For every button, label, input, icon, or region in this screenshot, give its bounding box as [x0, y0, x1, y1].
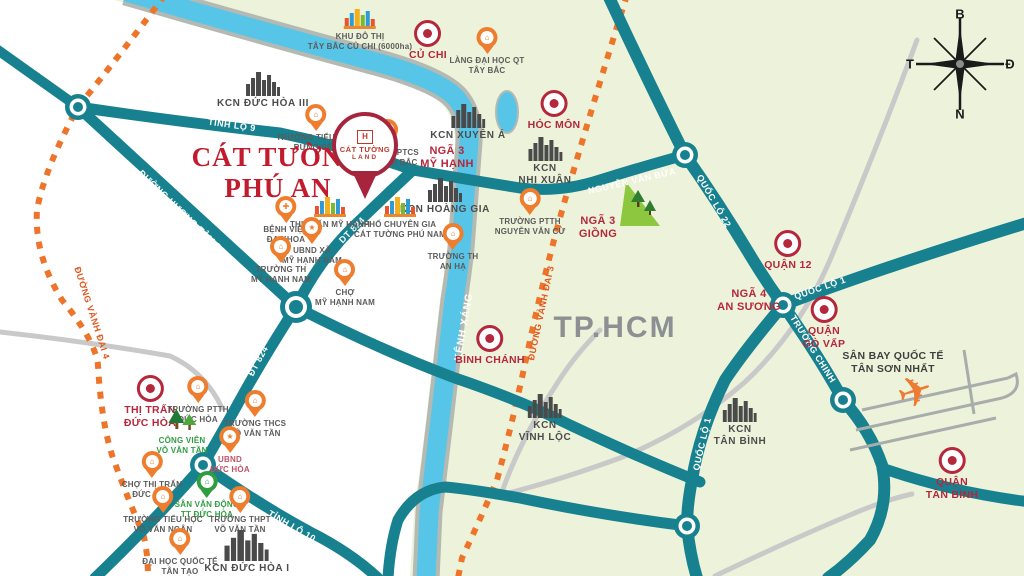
compass-south-label: N — [955, 107, 964, 122]
cat-tuong-logo-icon: H — [357, 130, 373, 144]
poi-pin-icon: ⌂ — [244, 390, 265, 411]
marker-label: QUẬN 12 — [764, 259, 812, 272]
poi-pin-icon: ⌂ — [519, 188, 540, 209]
marker-label: KHU ĐÔ THỊ TÂY BẮC CỦ CHI (6000ha) — [308, 32, 412, 51]
marker-kcn-nhi-xuan: KCN NHỊ XUÂN — [518, 137, 571, 187]
park-nga-3-giong — [620, 182, 660, 226]
marker-label: NGÃ 3 GIỒNG — [579, 215, 617, 241]
factory-icon — [528, 394, 562, 418]
factory-icon — [528, 137, 562, 161]
marker-san-bay-quoc-te-tan-son-nhat: SÂN BAY QUỐC TẾ TÂN SƠN NHẤT — [842, 348, 943, 375]
poi-pin-icon: ⌂ — [188, 376, 209, 397]
marker-label: SÂN BAY QUỐC TẾ TÂN SƠN NHẤT — [842, 350, 943, 375]
poi-pin-icon: ⌂ — [270, 236, 291, 257]
marker-quan-tan-binh: QUẬN TÂN BÌNH — [926, 447, 979, 501]
marker-cu-chi: CỦ CHI — [409, 20, 447, 62]
district-circle-icon — [939, 447, 966, 474]
project-pin: H CÁT TƯỜNG LAND — [332, 112, 398, 199]
compass-star-icon — [908, 10, 1012, 118]
district-circle-icon — [477, 325, 504, 352]
poi-pin-icon: ⌂ — [443, 223, 464, 244]
marker-label: LÀNG ĐẠI HỌC QT TÂY BẮC — [450, 56, 525, 75]
project-pin-badge: H CÁT TƯỜNG LAND — [332, 112, 398, 178]
factory-icon — [225, 530, 269, 561]
factory-icon — [451, 104, 485, 128]
compass-west-label: T — [906, 57, 914, 72]
marker-label: HÓC MÔN — [528, 119, 581, 132]
marker-label: TRƯỜNG TH MỸ HẠNH NAM — [251, 265, 311, 284]
marker-truong-th-my-hanh-nam: ⌂TRƯỜNG TH MỸ HẠNH NAM — [251, 236, 311, 284]
marker-tp-hcm: TP.HCM — [553, 308, 676, 346]
compass-east-label: Đ — [1005, 57, 1014, 72]
poi-pin-icon: ⌂ — [477, 27, 498, 48]
district-circle-icon — [540, 90, 567, 117]
district-circle-icon — [775, 230, 802, 257]
marker-quan-12: QUẬN 12 — [764, 230, 812, 272]
marker-ubnd-duc-hoa: ★UBND ĐỨC HÒA — [210, 426, 250, 474]
poi-pin-icon: ⌂ — [305, 104, 326, 125]
marker-cong-vien-vo-van-tan: CÔNG VIÊN VÕ VĂN TẦN — [156, 408, 207, 455]
marker-truong-th-an-ha: ⌂TRƯỜNG TH AN HẠ — [428, 223, 479, 271]
city-icon — [343, 8, 377, 30]
marker-binh-chanh: BÌNH CHÁNH — [455, 325, 525, 367]
marker-truong-thpt-vo-van-tan: ⌂TRƯỜNG THPT VÕ VĂN TẦN — [209, 486, 270, 534]
marker-truong-ptth-nguyen-van-cu: ⌂TRƯỜNG PTTH NGUYỄN VĂN CỪ — [495, 188, 566, 236]
marker-label: NGÃ 4 AN SƯƠNG — [717, 288, 781, 314]
marker-label: BÌNH CHÁNH — [455, 354, 525, 367]
marker-kcn-duc-hoa-1: KCN ĐỨC HÒA I — [204, 530, 289, 575]
marker-quan-go-vap: QUẬN GÒ VẤP — [803, 296, 846, 350]
marker-label: CỦ CHI — [409, 49, 447, 62]
marker-kcn-vinh-loc: KCN VĨNH LỘC — [519, 394, 572, 444]
compass-north-label: B — [955, 7, 964, 22]
marker-khu-do-thi-tay-bac-cu-chi: KHU ĐÔ THỊ TÂY BẮC CỦ CHI (6000ha) — [308, 8, 412, 51]
project-title-line2: PHÚ AN — [224, 173, 331, 203]
project-pin-name: CÁT TƯỜNG — [340, 145, 390, 154]
poi-pin-icon: ⌂ — [169, 528, 190, 549]
poi-pin-icon: ★ — [220, 426, 241, 447]
marker-nga-4-an-suong: NGÃ 4 AN SƯƠNG — [717, 286, 781, 314]
marker-label: QUẬN TÂN BÌNH — [926, 476, 979, 501]
marker-label: NGÃ 3 MỸ HẠNH — [420, 145, 473, 171]
park-trees-icon — [167, 408, 197, 434]
district-circle-icon — [136, 375, 163, 402]
marker-label: KCN NHỊ XUÂN — [518, 163, 571, 187]
marker-nga-3-giong: NGÃ 3 GIỒNG — [579, 213, 617, 241]
map-canvas: KHU ĐÔ THỊ TÂY BẮC CỦ CHI (6000ha)CỦ CHI… — [0, 0, 1024, 576]
factory-icon — [246, 72, 280, 96]
marker-nga-3-my-hanh: NGÃ 3 MỸ HẠNH — [420, 143, 473, 171]
factory-icon — [723, 398, 757, 422]
district-circle-icon — [811, 296, 838, 323]
marker-label: CHỢ MỸ HẠNH NAM — [315, 288, 375, 307]
marker-label: KCN ĐỨC HÒA I — [204, 563, 289, 575]
marker-kcn-xuyen-a: KCN XUYÊN Á — [430, 104, 506, 142]
city-icon — [383, 196, 417, 218]
marker-truong-tieu-hoc-vo-van-ngan: ⌂TRƯỜNG TIỂU HỌC VÕ VĂN NGÂN — [123, 486, 203, 534]
marker-hoc-mon: HÓC MÔN — [528, 90, 581, 132]
compass-rose: B N T Đ — [908, 10, 1012, 118]
marker-label: KCN VĨNH LỘC — [519, 420, 572, 444]
marker-label: QUẬN GÒ VẤP — [803, 325, 846, 350]
marker-label: KCN TÂN BÌNH — [714, 424, 767, 448]
project-pin-name2: LAND — [352, 154, 378, 161]
district-circle-icon — [415, 20, 442, 47]
poi-pin-icon: ⌂ — [230, 486, 251, 507]
poi-pin-icon: ⌂ — [334, 259, 355, 280]
poi-pin-icon: ⌂ — [142, 451, 163, 472]
poi-pin-icon: ★ — [301, 217, 322, 238]
poi-pin-icon: ⌂ — [152, 486, 173, 507]
marker-kcn-tan-binh: KCN TÂN BÌNH — [714, 398, 767, 448]
marker-label: TRƯỜNG TH AN HẠ — [428, 252, 479, 271]
marker-label: KCN XUYÊN Á — [430, 130, 506, 142]
project-pin-tail-icon — [352, 171, 378, 199]
marker-label: TRƯỜNG PTTH NGUYỄN VĂN CỪ — [495, 217, 566, 236]
marker-lang-dai-hoc-qt-tay-bac: ⌂LÀNG ĐẠI HỌC QT TÂY BẮC — [450, 27, 525, 75]
marker-cho-my-hanh-nam: ⌂CHỢ MỸ HẠNH NAM — [315, 259, 375, 307]
marker-label: TP.HCM — [553, 310, 676, 346]
